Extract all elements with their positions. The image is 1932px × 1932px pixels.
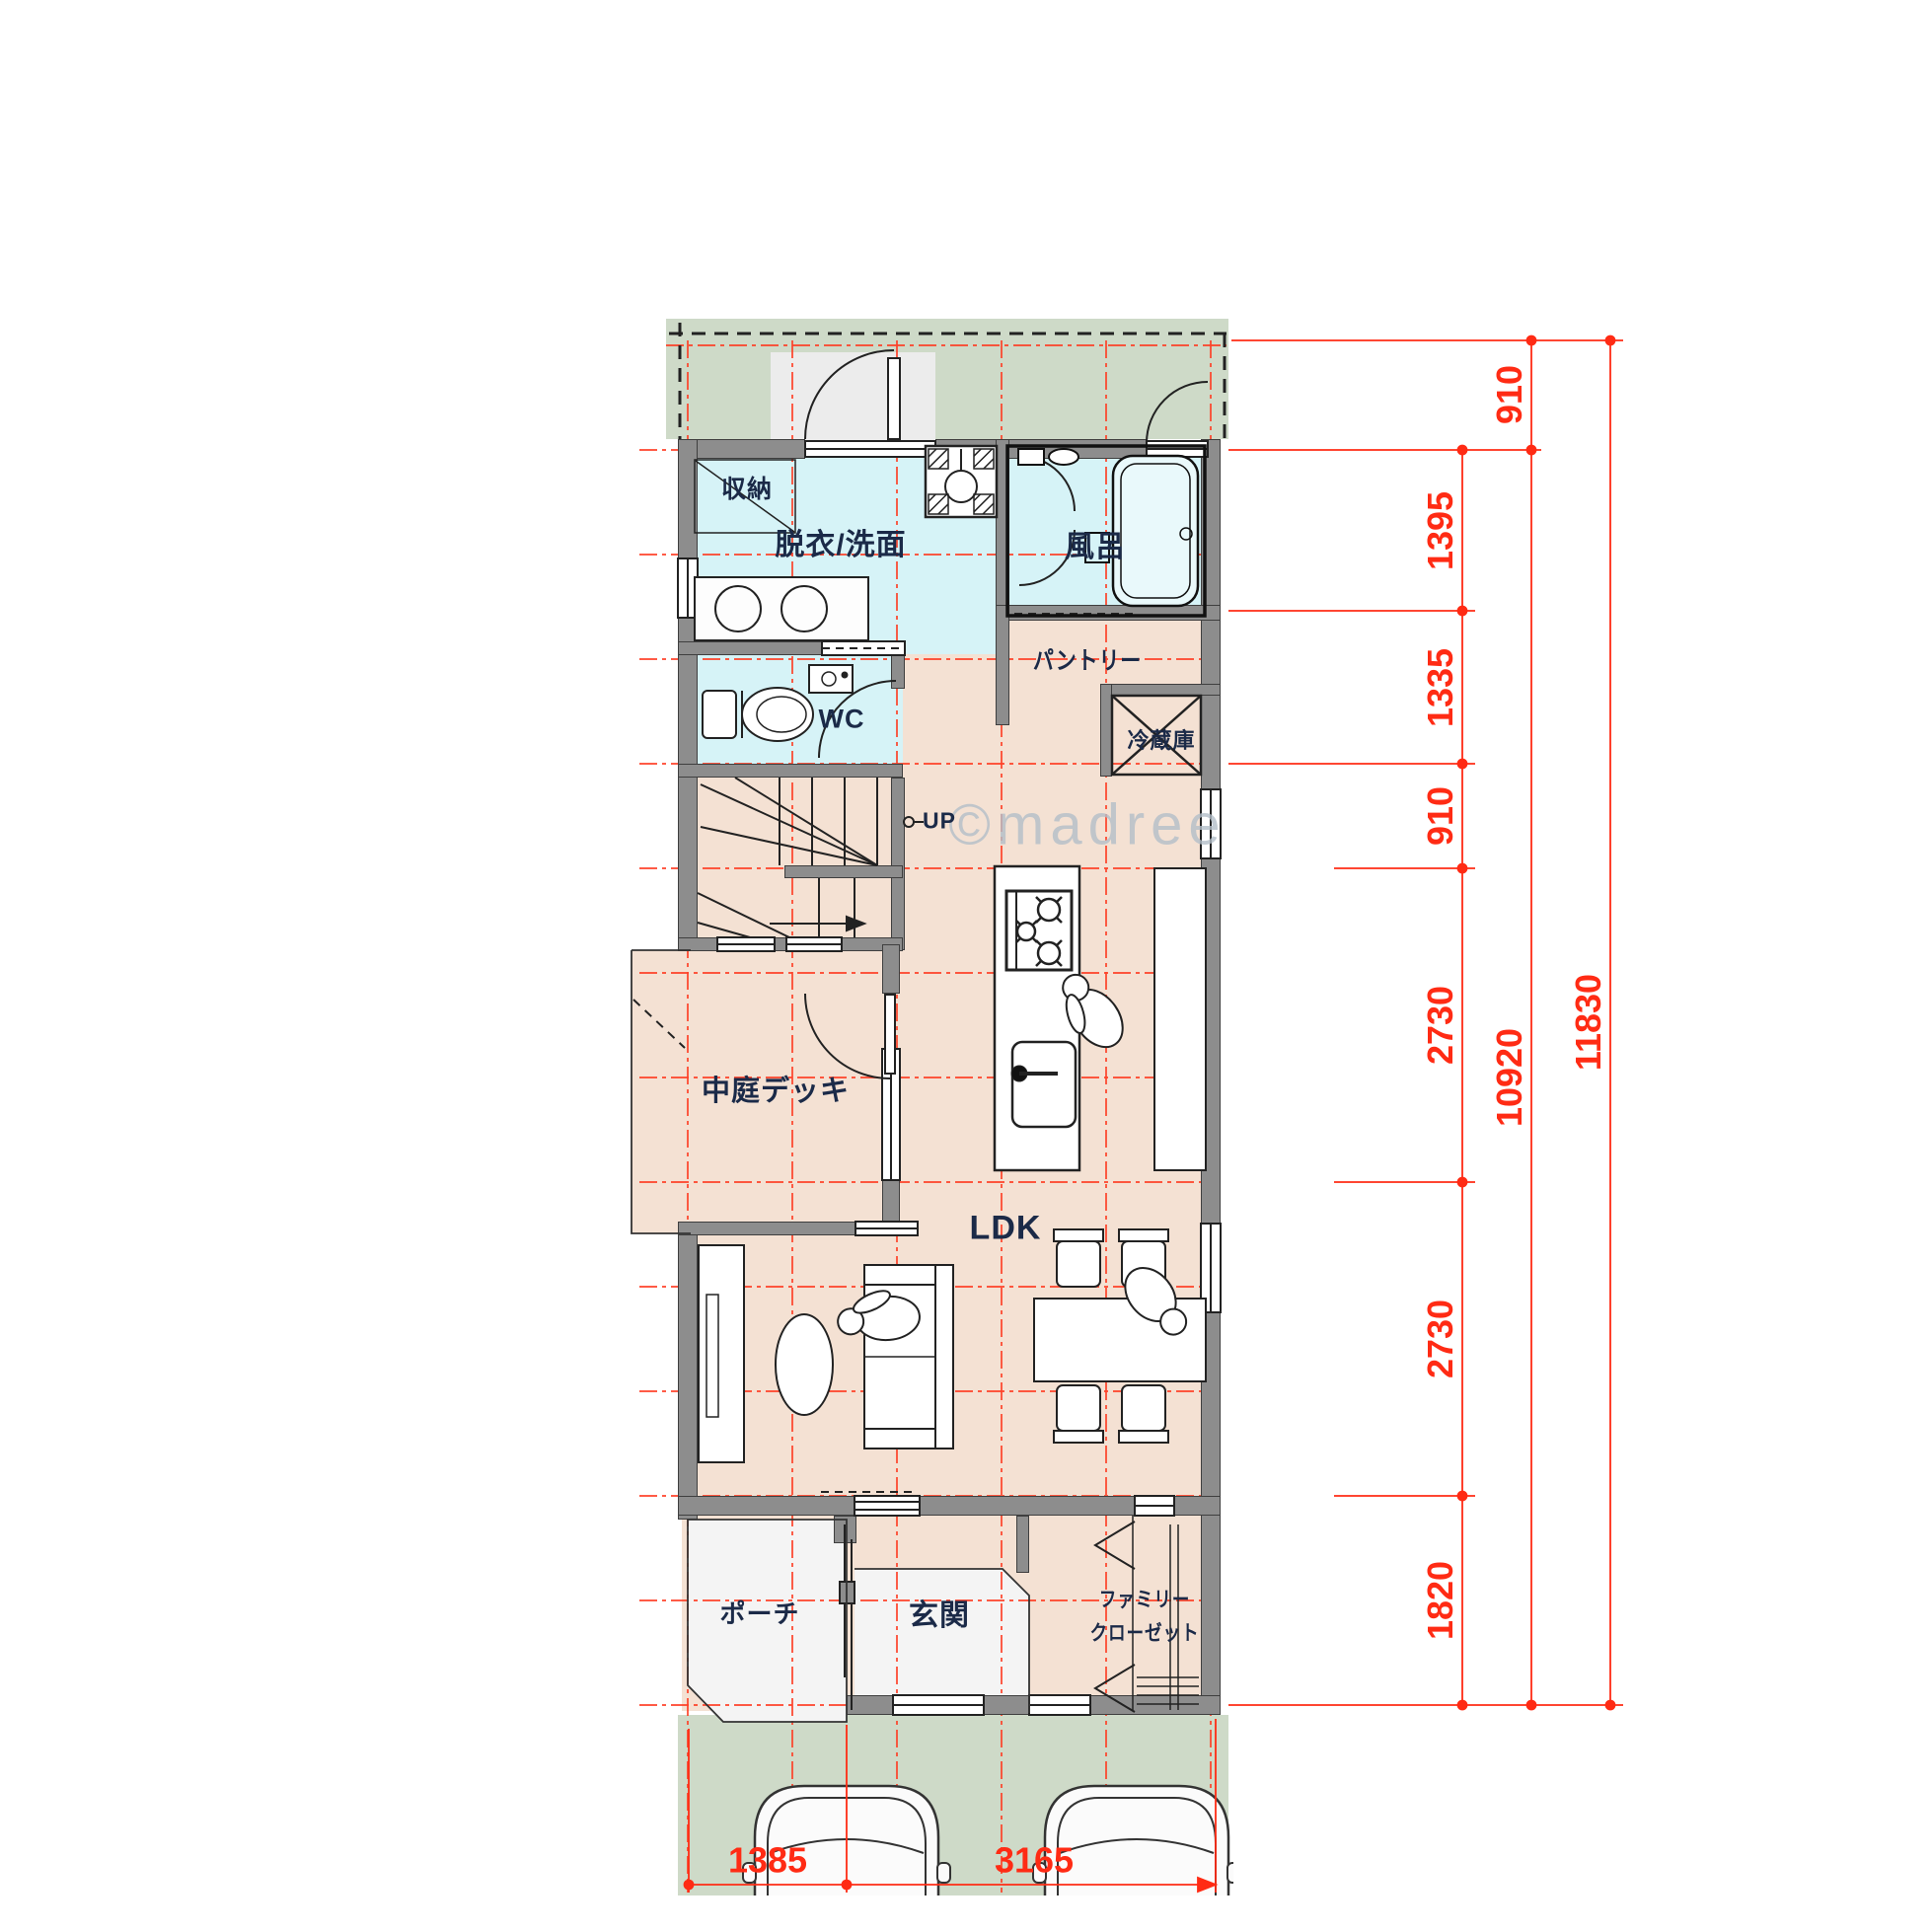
site-boundary-dashes [669, 323, 1226, 439]
closet-fittings [1095, 1516, 1199, 1712]
dim-right-10920: 10920 [1489, 1028, 1530, 1127]
room-label-fridge: 冷蔵庫 [1127, 723, 1195, 755]
dim-right-910-top: 910 [1489, 365, 1530, 424]
room-label-storage: 収納 [721, 470, 773, 505]
dim-right-1335: 1335 [1420, 648, 1461, 727]
dim-bottom-1385: 1385 [728, 1839, 807, 1881]
stairs [698, 778, 924, 937]
watermark: ©madree [948, 792, 1226, 858]
room-label-bath: 風呂 [1065, 522, 1126, 565]
furniture [699, 1229, 1206, 1462]
linework-layer [0, 0, 1932, 1932]
room-label-ldk: LDK [970, 1210, 1042, 1248]
dim-bottom-3165: 3165 [995, 1839, 1074, 1881]
stairs-up-label: UP [923, 808, 956, 835]
room-label-washroom: 脱衣/洗面 [775, 520, 906, 563]
cars [743, 1786, 1240, 1909]
room-label-closet-line2: クローゼット [1090, 1617, 1200, 1647]
room-label-entrance: 玄関 [909, 1591, 970, 1634]
dim-right-2730-a: 2730 [1420, 986, 1461, 1065]
room-label-deck: 中庭デッキ [702, 1068, 850, 1109]
dim-right-910: 910 [1420, 786, 1461, 846]
room-label-closet-line1: ファミリー [1099, 1584, 1190, 1613]
dim-right-1395: 1395 [1420, 491, 1461, 570]
dim-right-2730-b: 2730 [1420, 1300, 1461, 1378]
dim-right-1820: 1820 [1420, 1561, 1461, 1640]
room-label-pantry: パントリー [1033, 641, 1142, 677]
room-label-wc: WC [819, 705, 865, 735]
room-label-porch: ポーチ [719, 1595, 799, 1631]
dim-right-11830: 11830 [1568, 974, 1609, 1071]
floor-plan: ©madree 収納 脱衣/洗面 風呂 WC パントリー 冷蔵庫 UP 中庭デッ… [0, 0, 1932, 1932]
